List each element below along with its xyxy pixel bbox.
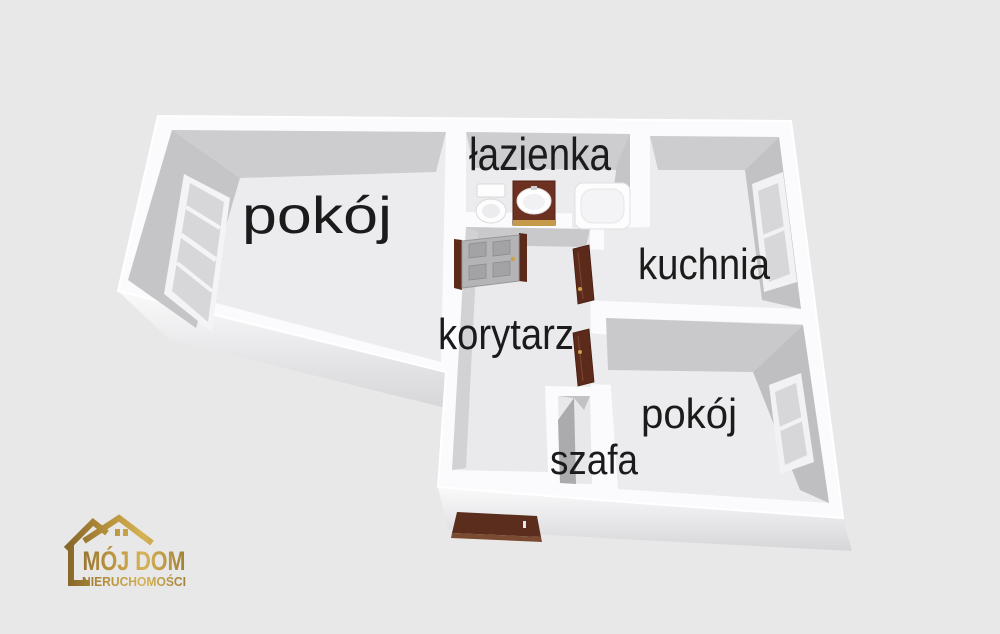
washbasin-inner [523,194,545,210]
floor-plan-screenshot: pokój łazienka kuchnia korytarz pokój sz… [0,0,1000,634]
house-window [115,529,120,536]
room-label-pokoj-1: pokój [242,187,392,245]
door-panel [493,240,510,256]
bathtub-basin [581,189,624,223]
door-handle [578,287,582,291]
room-label-kuchnia: kuchnia [638,240,770,289]
bathtub [575,183,630,229]
room-label-pokoj-2: pokój [641,390,737,437]
room-label-szafa: szafa [550,436,639,483]
door-panel [469,242,486,258]
logo-subtitle: NIERUCHOMOŚCI [82,574,186,589]
room-label-lazienka: łazienka [469,128,611,180]
house-window [123,529,128,536]
entrance-door-leaf [452,512,541,537]
door-panel [493,261,510,277]
door-frame-post [519,233,527,282]
room-label-korytarz: korytarz [438,310,574,359]
door-frame-post [454,239,462,290]
logo-title: MÓJ DOM [83,545,186,576]
cabinet-base [513,220,555,226]
door-handle [578,350,582,354]
paneled-interior-door [454,233,527,290]
door-handle [511,257,515,261]
floor-plan-svg: pokój łazienka kuchnia korytarz pokój sz… [0,0,1000,634]
washbasin-cabinet [513,181,555,226]
door-panel [469,264,486,280]
toilet [476,184,506,223]
entrance-door-handle [523,521,526,528]
toilet-tank [477,184,505,197]
toilet-bowl-inner [482,204,500,218]
faucet [531,186,537,190]
entrance-door [451,512,542,542]
